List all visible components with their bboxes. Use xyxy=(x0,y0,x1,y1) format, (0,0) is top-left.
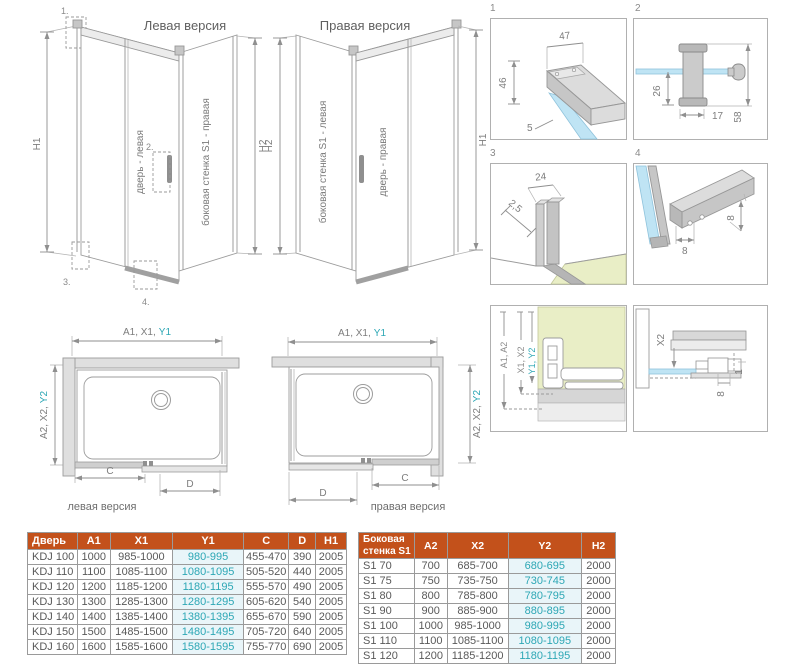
dim-17: 17 xyxy=(680,109,724,122)
table-cell: KDJ 110 xyxy=(28,565,78,580)
table-cell: S1 75 xyxy=(359,574,415,589)
table-cell: KDJ 150 xyxy=(28,625,78,640)
table-cell: 985-1000 xyxy=(110,550,173,565)
table-cell: 2000 xyxy=(582,604,616,619)
table-cell: 680-695 xyxy=(508,559,582,574)
table-row: S1 90900885-900880-8952000 xyxy=(359,604,616,619)
column-header: Дверь xyxy=(28,533,78,550)
handle-mark xyxy=(149,461,153,466)
svg-text:Y1, Y2: Y1, Y2 xyxy=(527,348,537,375)
svg-text:17: 17 xyxy=(712,111,724,122)
table-cell: 1185-1200 xyxy=(110,580,173,595)
svg-text:8: 8 xyxy=(726,215,737,221)
table-cell: 1000 xyxy=(414,619,447,634)
detail-3-box: 24 2,5 xyxy=(490,163,627,285)
table-cell: 780-795 xyxy=(508,589,582,604)
detail-6-box: X2 8 1 xyxy=(633,305,768,432)
wall-section xyxy=(636,309,649,388)
sliding-door-plan xyxy=(289,464,373,470)
top-dimension: A1, X1,Y1 xyxy=(72,327,222,356)
table-cell: 1200 xyxy=(77,580,110,595)
sliding-door-plan xyxy=(142,466,227,472)
svg-text:24: 24 xyxy=(535,171,548,183)
door-label: дверь - правая xyxy=(378,128,389,197)
table-cell: 2000 xyxy=(582,589,616,604)
table-cell: 640 xyxy=(289,625,316,640)
table-cell: 750 xyxy=(414,574,447,589)
table-cell: 1580-1595 xyxy=(173,640,244,655)
table-cell: 980-995 xyxy=(173,550,244,565)
table-cell: 1385-1400 xyxy=(110,610,173,625)
table-row: KDJ 15015001485-15001480-1495705-7206402… xyxy=(28,625,347,640)
svg-text:8: 8 xyxy=(682,246,688,257)
table-cell: 685-700 xyxy=(447,559,508,574)
handle-mark xyxy=(361,458,365,463)
table-cell: 1085-1100 xyxy=(447,634,508,649)
table-cell: 455-470 xyxy=(244,550,289,565)
table-cell: 1000 xyxy=(77,550,110,565)
table-cell: 540 xyxy=(289,595,316,610)
detail-5-box: A1, A2 X1, X2 Y1, Y2 xyxy=(490,305,627,432)
table-cell: 2005 xyxy=(316,580,347,595)
table-cell: 1480-1495 xyxy=(173,625,244,640)
table-cell: 505-520 xyxy=(244,565,289,580)
svg-text:X2: X2 xyxy=(656,333,667,346)
table-row: S1 70700685-700680-6952000 xyxy=(359,559,616,574)
header-row: ДверьA1X1Y1CDH1 xyxy=(28,533,347,550)
detail-1-drawing: 47 46 5 xyxy=(491,19,626,139)
door-table: ДверьA1X1Y1CDH1KDJ 1001000985-1000980-99… xyxy=(27,532,347,655)
table-cell: 655-670 xyxy=(244,610,289,625)
table-cell: KDJ 100 xyxy=(28,550,78,565)
detail-3-drawing: 24 2,5 xyxy=(491,164,626,284)
d-label: D xyxy=(319,488,326,499)
d-label: D xyxy=(186,479,193,490)
table-cell: 2005 xyxy=(316,550,347,565)
table-row: S1 12012001185-12001180-11952000 xyxy=(359,649,616,664)
h1-label: H1 xyxy=(32,137,43,150)
callout-3-label: 3. xyxy=(63,277,71,287)
dim-46: 46 xyxy=(498,61,520,104)
wall-spec-table: Боковая стенка S1A2X2Y2H2S1 70700685-700… xyxy=(358,532,616,664)
table-cell: 2000 xyxy=(582,559,616,574)
plan-left-caption: левая версия xyxy=(68,501,137,513)
table-cell: 2000 xyxy=(582,649,616,664)
table-row: KDJ 11011001085-11001080-1095505-5204402… xyxy=(28,565,347,580)
table-row: S1 75750735-750730-7452000 xyxy=(359,574,616,589)
table-cell: 1085-1100 xyxy=(110,565,173,580)
table-cell: 1080-1095 xyxy=(508,634,582,649)
detail-4-number: 4 xyxy=(635,148,641,159)
table-cell: S1 110 xyxy=(359,634,415,649)
table-cell: 730-745 xyxy=(508,574,582,589)
table-cell: 2005 xyxy=(316,640,347,655)
column-header: X2 xyxy=(447,533,508,559)
wall-profile-cap xyxy=(73,20,82,28)
table-cell: 1400 xyxy=(77,610,110,625)
table-cell: KDJ 120 xyxy=(28,580,78,595)
iso-right-drawing: Правая версия H2 xyxy=(268,0,496,312)
table-cell: 1500 xyxy=(77,625,110,640)
door-handle xyxy=(359,155,364,183)
column-header: H1 xyxy=(316,533,347,550)
h1-label: H1 xyxy=(478,133,489,146)
d-dimension: D xyxy=(160,470,220,496)
svg-text:X1, X2: X1, X2 xyxy=(516,346,526,373)
table-cell: 985-1000 xyxy=(447,619,508,634)
table-cell: 1285-1300 xyxy=(110,595,173,610)
table-cell: S1 70 xyxy=(359,559,415,574)
svg-text:8: 8 xyxy=(716,391,727,397)
plan-left-drawing: A1, X1,Y1 A2, X2,Y2 xyxy=(30,320,265,520)
table-row: KDJ 14014001385-14001380-1395655-6705902… xyxy=(28,610,347,625)
door-label: дверь - левая xyxy=(135,130,146,194)
table-cell: 690 xyxy=(289,640,316,655)
shower-tray xyxy=(77,370,227,466)
svg-text:47: 47 xyxy=(559,30,572,42)
plan-right-drawing: A1, X1,Y1 C D xyxy=(262,320,497,520)
table-cell: 440 xyxy=(289,565,316,580)
door-handle xyxy=(167,155,172,183)
table-cell: 2005 xyxy=(316,610,347,625)
iso-left-drawing: Левая версия H1 1. 2. 3. 4. xyxy=(33,0,273,312)
c-dimension: C xyxy=(75,466,145,483)
handle-mark xyxy=(143,461,147,466)
side-dim-label: A2, X2,Y2 xyxy=(39,391,50,439)
detail-4-box: 8 8 xyxy=(633,163,768,285)
table-cell: 885-900 xyxy=(447,604,508,619)
dim-8-width: 8 xyxy=(676,222,694,257)
detail-2-number: 2 xyxy=(635,3,641,14)
table-cell: 1080-1095 xyxy=(173,565,244,580)
dim-47: 47 xyxy=(547,30,583,69)
table-cell: S1 100 xyxy=(359,619,415,634)
detail-2-box: 26 17 58 xyxy=(633,18,768,140)
wall-profile xyxy=(536,198,564,266)
svg-text:5: 5 xyxy=(527,123,533,134)
column-header: X1 xyxy=(110,533,173,550)
table-cell: 555-570 xyxy=(244,580,289,595)
table-cell: S1 120 xyxy=(359,649,415,664)
side-wall-table: Боковая стенка S1A2X2Y2H2S1 70700685-700… xyxy=(358,532,616,664)
detail-5-drawing: A1, A2 X1, X2 Y1, Y2 xyxy=(491,306,626,431)
d-dimension: D xyxy=(289,472,357,505)
h2-dimension: H2 xyxy=(264,36,296,254)
detail-4-drawing: 8 8 xyxy=(634,164,767,284)
table-cell: KDJ 130 xyxy=(28,595,78,610)
column-header: Y2 xyxy=(508,533,582,559)
dim-24: 24 xyxy=(528,171,561,202)
table-cell: 1200 xyxy=(414,649,447,664)
h1-dimension: H1 xyxy=(32,26,76,256)
door-glass xyxy=(356,27,454,281)
table-cell: 705-720 xyxy=(244,625,289,640)
dim-2-5: 2,5 xyxy=(501,198,536,237)
column-header: Боковая стенка S1 xyxy=(359,533,415,559)
table-cell: 605-620 xyxy=(244,595,289,610)
table-cell: 390 xyxy=(289,550,316,565)
detail-1-number: 1 xyxy=(490,3,496,14)
table-cell: 1180-1195 xyxy=(508,649,582,664)
table-cell: 1100 xyxy=(77,565,110,580)
wall-profile-cap xyxy=(452,20,461,28)
spec-sheet: Левая версия H1 1. 2. 3. 4. xyxy=(0,0,785,669)
detail-2-drawing: 26 17 58 xyxy=(634,19,767,139)
door-spec-table: ДверьA1X1Y1CDH1KDJ 1001000985-1000980-99… xyxy=(27,532,347,655)
detail-3-number: 3 xyxy=(490,148,496,159)
callout-1-label: 1. xyxy=(61,6,69,16)
c-dimension: C xyxy=(372,466,439,490)
table-cell: 900 xyxy=(414,604,447,619)
table-cell: 1380-1395 xyxy=(173,610,244,625)
c-label: C xyxy=(401,473,408,484)
tray-base xyxy=(538,403,625,421)
table-row: KDJ 1001000985-1000980-995455-4703902005 xyxy=(28,550,347,565)
glass-foot xyxy=(650,236,668,248)
right-version-title: Правая версия xyxy=(320,18,410,33)
h1-dimension: H1 xyxy=(454,26,489,255)
header-row: Боковая стенка S1A2X2Y2H2 xyxy=(359,533,616,559)
table-cell: 1600 xyxy=(77,640,110,655)
table-cell: 2005 xyxy=(316,565,347,580)
left-version-title: Левая версия xyxy=(144,18,226,33)
callout-4-label: 4. xyxy=(142,297,150,307)
handle-mark xyxy=(367,458,371,463)
table-cell: 700 xyxy=(414,559,447,574)
wall-top xyxy=(63,358,239,368)
table-cell: 1300 xyxy=(77,595,110,610)
shower-tray xyxy=(289,367,439,463)
plan-right-caption: правая версия xyxy=(371,501,446,513)
tray-edge xyxy=(538,389,625,403)
table-cell: 980-995 xyxy=(508,619,582,634)
table-cell: 735-750 xyxy=(447,574,508,589)
table-cell: 2000 xyxy=(582,574,616,589)
table-row: KDJ 12012001185-12001180-1195555-5704902… xyxy=(28,580,347,595)
dim-5: 5 xyxy=(527,120,553,134)
dim-y1-y2: Y1, Y2 xyxy=(527,312,537,383)
table-cell: 1180-1195 xyxy=(173,580,244,595)
glass-panel xyxy=(649,369,696,374)
table-row: S1 11011001085-11001080-10952000 xyxy=(359,634,616,649)
h2-label: H2 xyxy=(264,139,275,152)
fixed-panel-plan xyxy=(372,459,439,465)
column-header: Y1 xyxy=(173,533,244,550)
table-cell: 1585-1600 xyxy=(110,640,173,655)
handle-knob xyxy=(728,64,745,80)
table-cell: 2005 xyxy=(316,595,347,610)
table-cell: 800 xyxy=(414,589,447,604)
top-dim-label: A1, X1,Y1 xyxy=(338,328,386,339)
side-dimension: A2, X2,Y2 xyxy=(458,365,483,463)
table-cell: 490 xyxy=(289,580,316,595)
table-cell: 590 xyxy=(289,610,316,625)
table-cell: KDJ 160 xyxy=(28,640,78,655)
table-row: KDJ 16016001585-16001580-1595755-7706902… xyxy=(28,640,347,655)
wall-label: боковая стенка S1 - левая xyxy=(317,101,329,223)
dim-58: 58 xyxy=(733,44,751,123)
table-row: KDJ 13013001285-13001280-1295605-6205402… xyxy=(28,595,347,610)
table-cell: S1 80 xyxy=(359,589,415,604)
door-panel xyxy=(356,20,461,282)
table-cell: 2000 xyxy=(582,619,616,634)
callout-2-label: 2. xyxy=(146,142,154,152)
wall-label: боковая стенка S1 - правая xyxy=(200,98,212,226)
svg-text:26: 26 xyxy=(652,85,663,97)
wall-left xyxy=(63,358,75,476)
table-cell: 1485-1500 xyxy=(110,625,173,640)
c-label: C xyxy=(106,466,113,477)
dim-26: 26 xyxy=(652,72,674,105)
svg-text:A1, A2: A1, A2 xyxy=(499,342,509,369)
svg-text:46: 46 xyxy=(498,77,509,89)
detail-6-drawing: X2 8 1 xyxy=(634,306,767,431)
table-cell: 755-770 xyxy=(244,640,289,655)
handle-profile xyxy=(679,44,707,106)
table-cell: 1280-1295 xyxy=(173,595,244,610)
corner-cap xyxy=(175,46,184,55)
top-dim-label: A1, X1,Y1 xyxy=(123,327,171,338)
table-cell: 2000 xyxy=(582,634,616,649)
table-cell: 1185-1200 xyxy=(447,649,508,664)
svg-text:1: 1 xyxy=(734,369,745,375)
table-cell: 785-800 xyxy=(447,589,508,604)
table-cell: 2005 xyxy=(316,625,347,640)
wall-top xyxy=(272,357,443,367)
table-row: S1 1001000985-1000980-9952000 xyxy=(359,619,616,634)
top-dimension: A1, X1,Y1 xyxy=(288,328,437,356)
table-cell: KDJ 140 xyxy=(28,610,78,625)
column-header: A2 xyxy=(414,533,447,559)
detail-1-box: 47 46 5 xyxy=(490,18,627,140)
table-row: S1 80800785-800780-7952000 xyxy=(359,589,616,604)
column-header: C xyxy=(244,533,289,550)
side-dim-label: A2, X2,Y2 xyxy=(472,390,483,438)
door-glass xyxy=(81,27,179,281)
svg-text:58: 58 xyxy=(733,111,744,123)
table-cell: 880-895 xyxy=(508,604,582,619)
column-header: D xyxy=(289,533,316,550)
column-header: H2 xyxy=(582,533,616,559)
table-cell: 1100 xyxy=(414,634,447,649)
table-cell: S1 90 xyxy=(359,604,415,619)
column-header: A1 xyxy=(77,533,110,550)
